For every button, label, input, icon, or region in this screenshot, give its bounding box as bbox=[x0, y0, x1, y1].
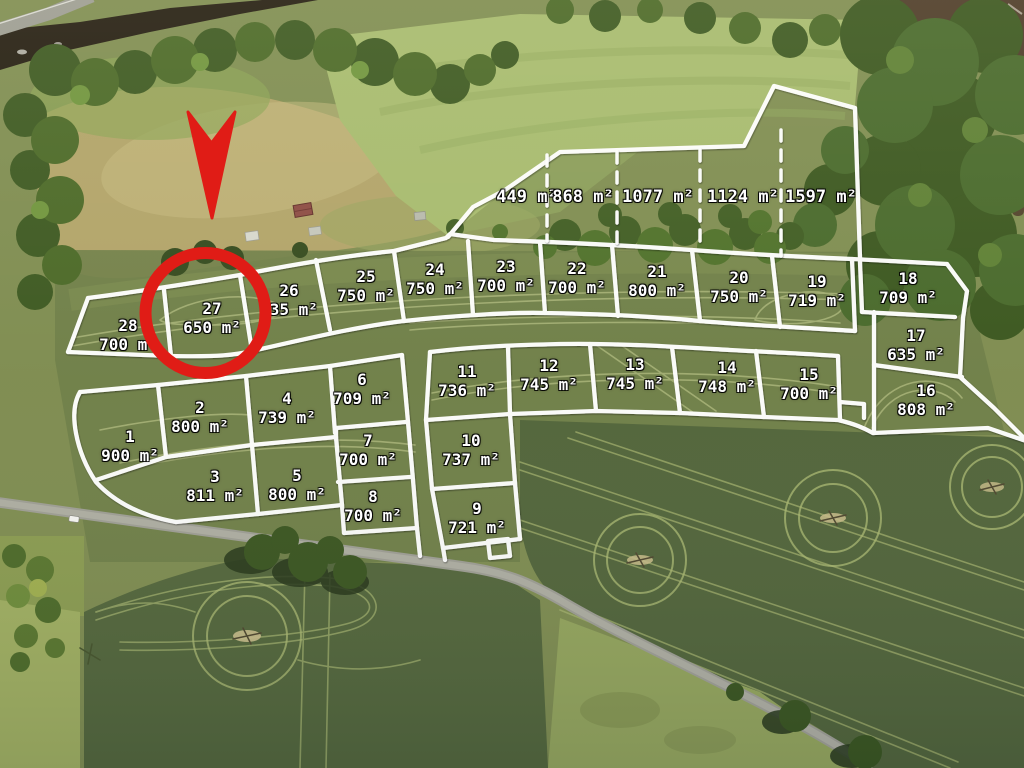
aerial-plot-map: 1900 m²2800 m²3811 m²4739 m²5800 m²6709 … bbox=[0, 0, 1024, 768]
aerial-photo bbox=[0, 0, 1024, 768]
light-overlay bbox=[0, 0, 1024, 768]
